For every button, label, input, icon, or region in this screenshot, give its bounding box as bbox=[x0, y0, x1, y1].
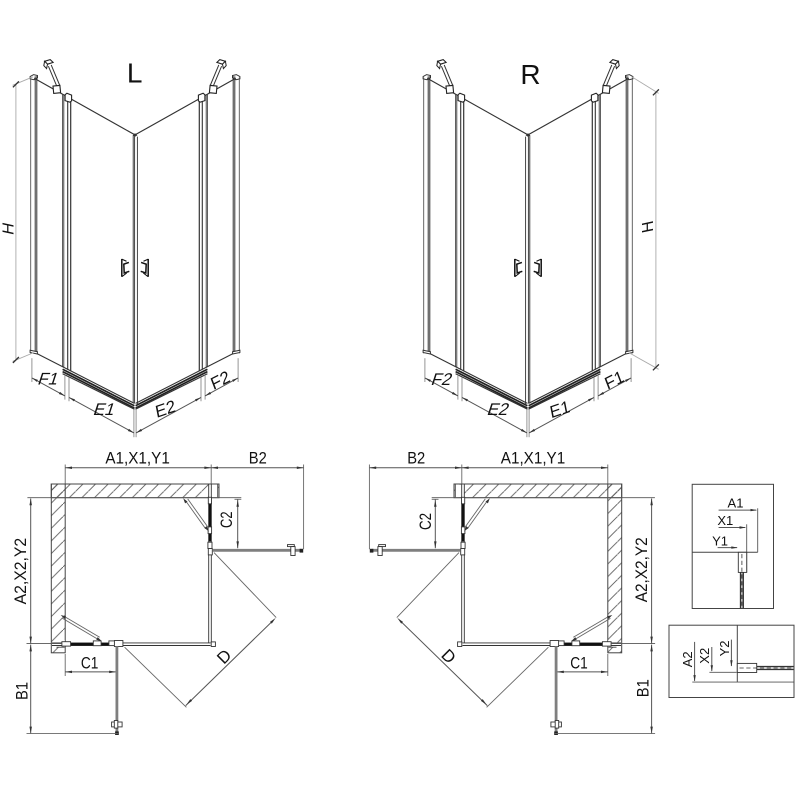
svg-text:E2: E2 bbox=[154, 396, 177, 422]
svg-text:C1: C1 bbox=[570, 654, 588, 673]
svg-text:A2,X2,Y2: A2,X2,Y2 bbox=[632, 537, 651, 602]
svg-text:A2: A2 bbox=[680, 651, 695, 667]
svg-text:B2: B2 bbox=[249, 449, 267, 468]
svg-text:A1: A1 bbox=[728, 495, 744, 510]
svg-text:X1: X1 bbox=[717, 513, 733, 528]
svg-text:H: H bbox=[0, 221, 17, 236]
svg-text:E2: E2 bbox=[485, 400, 512, 419]
svg-text:E1: E1 bbox=[91, 399, 118, 418]
svg-text:A1,X1,Y1: A1,X1,Y1 bbox=[105, 449, 169, 468]
svg-text:Y1: Y1 bbox=[712, 533, 728, 548]
svg-text:D: D bbox=[213, 646, 235, 668]
svg-text:X2: X2 bbox=[697, 648, 712, 664]
svg-text:A2,X2,Y2: A2,X2,Y2 bbox=[11, 538, 30, 605]
svg-text:B1: B1 bbox=[634, 679, 653, 697]
svg-text:R: R bbox=[520, 59, 540, 90]
svg-text:F2: F2 bbox=[429, 369, 455, 388]
svg-text:F1: F1 bbox=[36, 369, 62, 388]
svg-text:H: H bbox=[639, 219, 657, 234]
svg-text:D: D bbox=[437, 645, 459, 667]
svg-text:Y2: Y2 bbox=[717, 640, 732, 656]
svg-text:L: L bbox=[127, 58, 143, 89]
svg-text:C1: C1 bbox=[81, 654, 99, 673]
svg-text:C2: C2 bbox=[217, 512, 236, 529]
svg-text:F2: F2 bbox=[208, 367, 233, 394]
svg-text:F1: F1 bbox=[602, 367, 627, 394]
svg-text:E1: E1 bbox=[548, 397, 571, 423]
svg-text:A1,X1,Y1: A1,X1,Y1 bbox=[501, 449, 565, 468]
svg-text:B2: B2 bbox=[407, 449, 425, 468]
svg-text:C2: C2 bbox=[416, 513, 435, 530]
svg-text:B1: B1 bbox=[13, 682, 32, 700]
